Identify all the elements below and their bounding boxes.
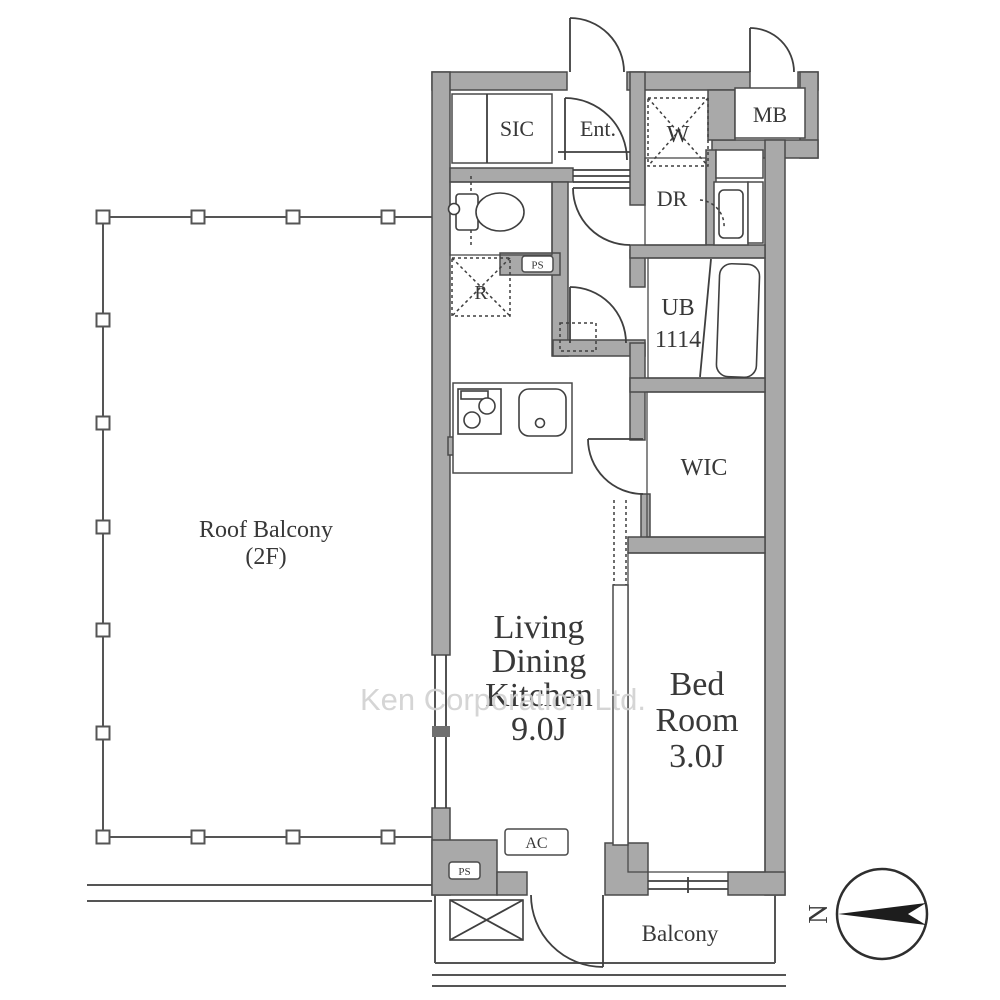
toilet-bowl bbox=[476, 193, 524, 231]
ldk-label-2: Dining bbox=[492, 643, 586, 680]
ps-lower-label: PS bbox=[458, 866, 470, 878]
balcony bbox=[435, 895, 775, 967]
window-bedroom-south bbox=[648, 877, 728, 893]
alcove-shelf bbox=[716, 150, 763, 178]
compass-north-label: N bbox=[803, 904, 833, 924]
floorplan-svg: AC PS PS SIC Ent. W MB DR R UB 1114 WIC … bbox=[0, 0, 1000, 1000]
balcony-door bbox=[531, 895, 603, 967]
ac-box: AC bbox=[505, 829, 568, 855]
toilet-fixture bbox=[449, 176, 525, 248]
toilet-handle bbox=[449, 204, 460, 215]
ac-label: AC bbox=[525, 835, 547, 852]
evacuation-hatch bbox=[450, 900, 523, 940]
burner bbox=[479, 398, 495, 414]
ldk-door bbox=[588, 439, 643, 494]
ldk-label-1: Living bbox=[494, 609, 585, 646]
watermark-text: Ken Corporation Ltd. bbox=[360, 682, 646, 717]
sink bbox=[519, 389, 566, 436]
ps-box-lower: PS bbox=[449, 862, 480, 879]
bathtub bbox=[700, 259, 760, 378]
meter-box-label: MB bbox=[753, 102, 787, 127]
compass: N bbox=[803, 869, 927, 959]
unit-bath-size: 1114 bbox=[655, 327, 701, 353]
entrance-label: Ent. bbox=[580, 116, 616, 141]
water-heater bbox=[714, 150, 763, 245]
burner bbox=[464, 412, 480, 428]
balcony-label: Balcony bbox=[642, 921, 719, 946]
wic-label: WIC bbox=[681, 455, 728, 481]
bedroom-label-1: Bed bbox=[670, 666, 725, 703]
bedroom-label-2: Room bbox=[655, 702, 738, 739]
roof-balcony-floor: (2F) bbox=[245, 544, 286, 570]
washer-label: W bbox=[667, 122, 690, 148]
meter-box-door bbox=[750, 28, 794, 72]
floorplan-page: AC PS PS SIC Ent. W MB DR R UB 1114 WIC … bbox=[0, 0, 1000, 1000]
dressing-room-label: DR bbox=[657, 186, 688, 211]
ps-box-upper: PS bbox=[522, 256, 553, 272]
sink-drain bbox=[536, 419, 545, 428]
bedroom-size: 3.0J bbox=[669, 738, 725, 775]
refrigerator-label: R bbox=[474, 282, 488, 304]
hallway-door bbox=[573, 188, 630, 245]
entrance-door-exterior bbox=[570, 18, 624, 72]
window-ldk-west bbox=[432, 655, 450, 808]
ps-upper-label: PS bbox=[531, 260, 543, 272]
compass-needle bbox=[838, 903, 926, 925]
sic-label: SIC bbox=[500, 116, 534, 141]
roof-balcony-label: Roof Balcony bbox=[199, 517, 333, 543]
unit-bath-label: UB bbox=[661, 295, 694, 321]
kitchen-counter bbox=[453, 383, 572, 473]
